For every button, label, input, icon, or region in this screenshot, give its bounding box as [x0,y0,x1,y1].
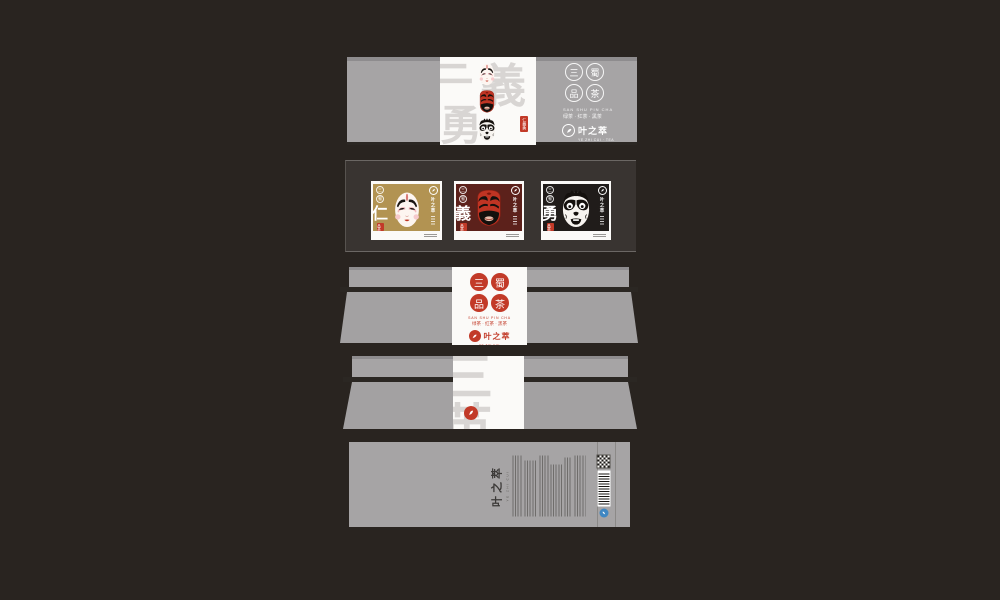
tea-box-ren-face: 三 蜀 仁 品茶 叶之萃 [373,184,440,231]
seal-char-san: 三 [565,63,583,81]
seal-char-cha: 茶 [586,84,604,102]
box-right-column: 叶之萃 [426,184,440,231]
red-seal-stamp: 品茶 [377,223,384,231]
microtext-paragraph [574,455,585,516]
seal-char-shu: 蜀 [586,63,604,81]
mini-seal-circle: 蜀 [546,195,554,203]
series-variants: 绿茶 · 红茶 · 黑茶 [563,113,633,120]
display-frame: 三 蜀 仁 品茶 叶之萃 [345,160,636,252]
eco-icon [599,508,608,517]
mini-seal-circle: 蜀 [459,195,467,203]
crease-line [615,442,616,527]
box-bottom-band [373,231,440,240]
series-seal-circles-red: 三 蜀 品 茶 [470,273,509,312]
tea-box-yi-face: 三 蜀 義 品茶 叶之萃 [456,184,522,231]
barcode [597,470,610,506]
zhang-fei-mask-icon [558,186,594,230]
microtext-lines [600,216,604,225]
seal-char-shu: 蜀 [491,273,509,291]
box-left-column: 三 蜀 義 品茶 [456,184,470,231]
sleeve-b-white-strip: 三英 [453,356,524,429]
microtext-paragraph [539,455,548,516]
box-bottom-band [543,231,609,240]
brand-name-vertical: 叶之萃 [512,197,518,214]
microtext-lines [431,216,435,225]
microtext-lines [513,216,517,225]
lid-brand-block: 三 蜀 品 茶 SAN SHU PIN CHA 绿茶 · 红茶 · 黑茶 叶之萃… [561,63,633,142]
seal-char-pin: 品 [470,294,488,312]
seal-char-pin: 品 [565,84,583,102]
brand-name: 叶之萃 [578,124,608,137]
tea-box-yong: 三 蜀 勇 品茶 叶之萃 [541,181,611,240]
red-seal-stamp: 品茶 [460,223,467,231]
box-left-column: 三 蜀 勇 品茶 [543,184,557,231]
box-bottom-band [456,231,522,240]
info-label: 叶之萃 YE ZHI CUI [488,453,612,518]
box-right-column: 叶之萃 [508,184,522,231]
brand-logo-row: 叶之萃 [562,124,633,137]
leaf-seal-icon [562,124,575,137]
guan-yu-mask-icon [476,88,498,115]
red-seal-stamp: 仁義勇 [520,116,528,132]
virtue-character: 義 [455,206,471,222]
packaging-mockup-board: 三 義 勇 仁義勇 三 蜀 品 茶 SAN SHU PIN CHA 绿茶 · 红… [0,0,1000,600]
guan-yu-mask-icon [471,186,507,230]
leaf-seal-icon [469,330,481,342]
brand-name: 叶之萃 [488,453,504,518]
leaf-seal-icon [466,408,475,417]
brand-name-latin: YE ZHI CUI · TEA [578,138,633,142]
brand-name-vertical: 叶之萃 [430,197,436,214]
tea-box-ren: 三 蜀 仁 品茶 叶之萃 [371,181,442,240]
zhang-fei-mask-icon [476,116,498,143]
virtue-character: 勇 [542,206,558,222]
info-label-rotated: 叶之萃 YE ZHI CUI [488,453,612,518]
microtext-paragraph [524,460,537,516]
tea-box-yi: 三 蜀 義 品茶 叶之萃 [454,181,524,240]
series-seal-circles: 三 蜀 品 茶 [565,63,633,102]
brand-logo-row: 叶之萃 [452,330,527,342]
bottom-panel: 叶之萃 YE ZHI CUI [349,442,630,527]
leaf-seal-icon [598,186,607,195]
mask-area [470,184,508,231]
leaf-seal-icon [511,186,520,195]
mask-area [557,184,595,231]
lid-panel: 三 義 勇 仁義勇 三 蜀 品 茶 SAN SHU PIN CHA 绿茶 · 红… [347,57,637,145]
heroes-watermark: 三英 [453,356,524,429]
box-left-column: 三 蜀 仁 品茶 [373,184,387,231]
mask-area [387,184,426,231]
leaf-seal-icon [429,186,438,195]
series-pinyin: SAN SHU PIN CHA [563,107,633,112]
series-pinyin: SAN SHU PIN CHA [452,316,527,320]
seal-char-cha: 茶 [491,294,509,312]
seal-char-san: 三 [470,273,488,291]
label-codes-row [595,453,612,518]
series-variants: 绿茶 · 红茶 · 黑茶 [452,321,527,327]
tea-box-yong-face: 三 蜀 勇 品茶 叶之萃 [543,184,609,231]
virtue-character: 仁 [372,206,388,222]
lid-mask-stack [476,60,498,143]
box-right-column: 叶之萃 [595,184,609,231]
brand-name-vertical: 叶之萃 [599,197,605,214]
brand-name-latin: YE ZHI CUI [452,343,527,345]
net-weight-microtext [424,234,437,237]
watermark-ren: 三 [440,57,474,89]
mini-seal-circle: 三 [546,186,554,194]
mini-seal-circle: 三 [459,186,467,194]
qr-code [596,454,610,468]
net-weight-microtext [593,234,606,237]
brand-name-latin: YE ZHI CUI [505,453,509,518]
product-info-microtext [512,453,595,518]
mini-seal-circle: 三 [376,186,384,194]
liu-bei-mask-icon [389,186,425,230]
net-weight-microtext [506,234,519,237]
liu-bei-mask-icon [476,60,498,87]
microtext-paragraph [512,455,522,516]
red-seal-stamp: 品茶 [547,223,554,231]
microtext-paragraph [550,464,562,516]
red-seal-stamp [463,405,479,421]
microtext-paragraph [564,457,572,516]
sleeve-a-white-strip: 三 蜀 品 茶 SAN SHU PIN CHA 绿茶 · 红茶 · 黑茶 叶之萃… [452,267,527,345]
mini-seal-circle: 蜀 [376,195,384,203]
lid-white-strip: 三 義 勇 仁義勇 [440,57,536,145]
brand-name: 叶之萃 [484,331,511,342]
